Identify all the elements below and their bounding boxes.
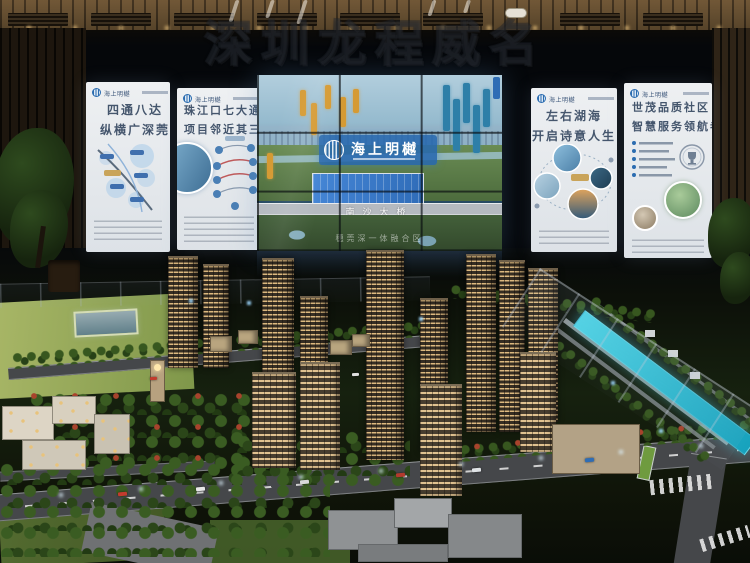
plaza-block bbox=[448, 514, 522, 558]
beige-podium-building bbox=[552, 424, 640, 474]
model-car bbox=[585, 458, 594, 463]
model-car bbox=[396, 473, 405, 478]
plaza-block bbox=[394, 498, 452, 528]
model-car bbox=[118, 492, 127, 497]
tower bbox=[466, 254, 496, 432]
plant-foliage bbox=[720, 252, 750, 304]
tower bbox=[366, 250, 404, 460]
midrise-building bbox=[300, 362, 340, 470]
white-building bbox=[94, 414, 130, 454]
white-building bbox=[52, 396, 96, 424]
clock-tower bbox=[150, 360, 165, 402]
model-car bbox=[150, 377, 157, 380]
sales-center-scene: 海上明樾 四通八达 纵横广深莞 海上明樾 bbox=[0, 0, 750, 563]
lowrise-building bbox=[210, 336, 232, 352]
photo-watermark: 深圳龙程威名 bbox=[204, 4, 546, 74]
architectural-model bbox=[0, 0, 750, 563]
clock-face bbox=[154, 364, 161, 371]
plaza-block bbox=[358, 544, 448, 562]
white-building bbox=[22, 440, 86, 470]
lowrise-building bbox=[352, 334, 370, 347]
midrise-building bbox=[520, 352, 556, 452]
far-bank-building bbox=[645, 330, 655, 337]
midrise-building bbox=[420, 384, 462, 496]
tower bbox=[168, 256, 198, 368]
lowrise-building bbox=[238, 330, 258, 344]
model-pool bbox=[73, 308, 138, 337]
street-lights bbox=[0, 0, 2, 2]
white-building bbox=[2, 406, 54, 440]
tower bbox=[203, 264, 229, 368]
model-car bbox=[196, 487, 205, 492]
lowrise-building bbox=[330, 340, 352, 355]
model-car bbox=[300, 480, 309, 485]
model-car bbox=[472, 468, 481, 473]
plant-pot bbox=[48, 260, 80, 292]
midrise-building bbox=[252, 372, 296, 468]
model-car bbox=[352, 373, 359, 376]
